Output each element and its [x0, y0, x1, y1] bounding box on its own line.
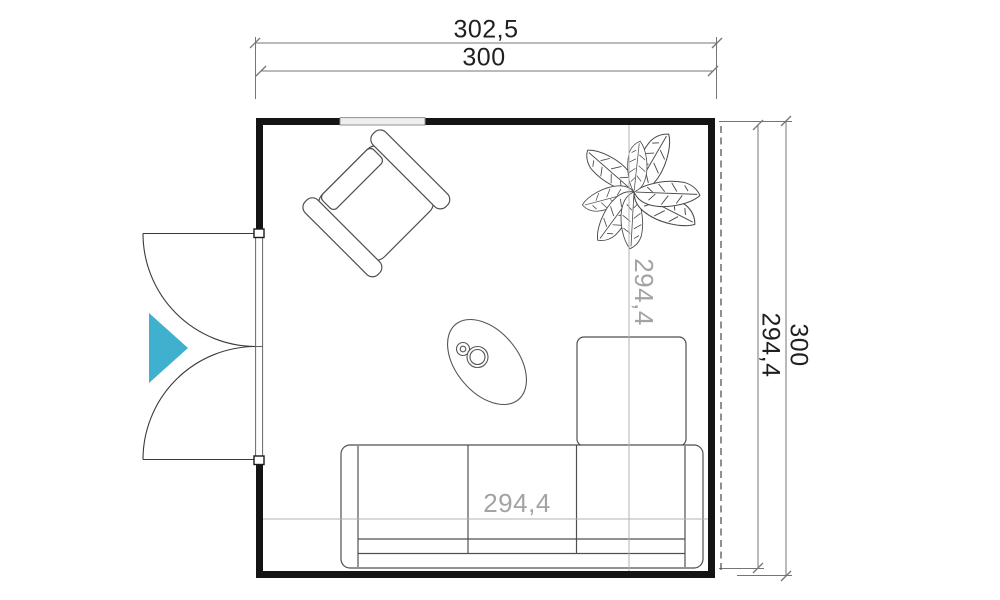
coffee-table — [432, 305, 542, 420]
double-door — [143, 229, 264, 465]
dimension-label-top-inner: 300 — [462, 46, 505, 71]
plant — [579, 127, 701, 249]
door-swing-arrow — [149, 313, 188, 383]
dimension-label-interior-height: 294,4 — [631, 258, 657, 326]
dimension-label-interior-width: 294,4 — [483, 490, 551, 516]
door-hinge-top — [254, 229, 264, 238]
armchair — [300, 127, 453, 280]
floor-plan: 302,5 300 294,4 300 294,4 294,4 — [0, 0, 1000, 600]
dimension-label-right-inner: 294,4 — [758, 312, 783, 377]
door-hinge-bottom — [254, 456, 264, 465]
window — [340, 118, 425, 125]
dimension-label-right-outer: 300 — [786, 323, 811, 366]
dimension-label-top-outer: 302,5 — [453, 18, 518, 43]
